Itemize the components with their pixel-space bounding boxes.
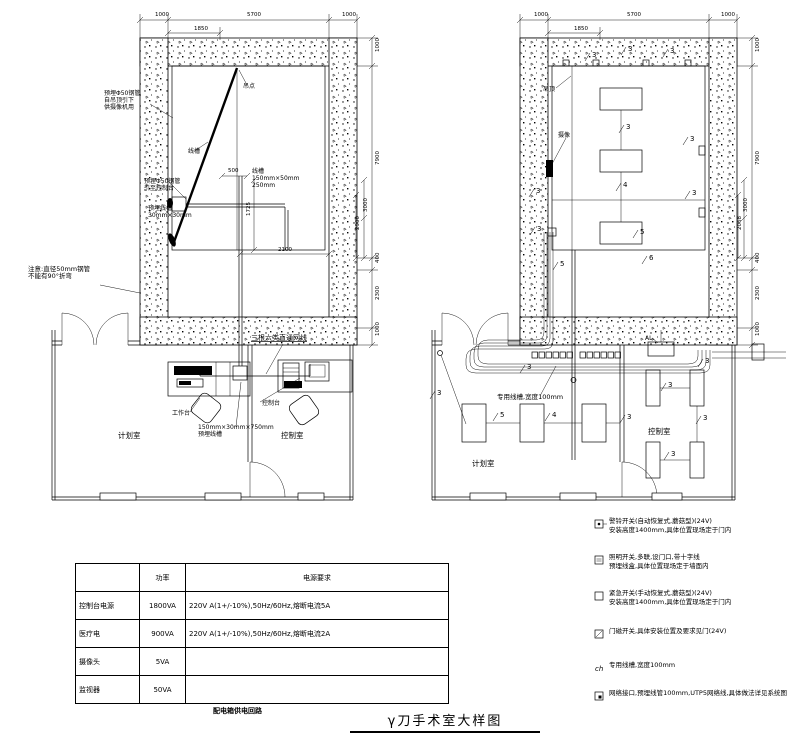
power-value: 5VA <box>140 648 186 676</box>
requirement-value <box>186 648 449 676</box>
equipment-cabinet <box>582 404 606 442</box>
chair <box>287 393 320 426</box>
note-tray-size: 150mm×50mm <box>252 175 300 182</box>
row-label: 摄像头 <box>76 648 140 676</box>
circuit-tick <box>619 125 624 133</box>
dimension-label: 2068 <box>737 216 743 230</box>
dimension-label: 400 <box>755 252 761 263</box>
monitor-rack <box>646 370 660 406</box>
note-floor-tray: 150mm×30mm×750mm <box>198 424 274 431</box>
circuit-number: 3 <box>670 47 674 55</box>
annotation-layer: 1000570010001850100057001000185010007900… <box>28 12 761 468</box>
note-embedded-tray: 预埋线槽 <box>148 204 172 212</box>
note-pipe-warning: 不能有90°折弯 <box>28 271 73 280</box>
circuit-number: 3 <box>592 51 596 59</box>
right-plan-walls <box>520 38 737 345</box>
dimension-label: 1000 <box>375 322 381 336</box>
workstation-desk <box>168 362 250 396</box>
dimension-label: 2300 <box>755 286 761 300</box>
dimension-label: 1000 <box>534 12 548 18</box>
entry-door-arcs <box>62 313 128 345</box>
dimension-label: 3000 <box>363 198 369 212</box>
label-camera: 摄像 <box>558 131 570 139</box>
ceiling-fixture <box>600 88 642 110</box>
requirement-value <box>186 676 449 704</box>
dimension-label: 1000 <box>721 12 735 18</box>
monitor-rack <box>690 370 704 406</box>
circuit-tick <box>493 413 498 421</box>
circuit-number: 3 <box>668 381 672 389</box>
circuit-number: 3 <box>692 189 696 197</box>
requirement-value: 220V A(1+/-10%),50Hz/60Hz,熔断电流2A <box>186 620 449 648</box>
circuit-tick <box>520 365 525 373</box>
circuit-tick <box>683 137 688 145</box>
cable-joint <box>438 351 443 356</box>
drawing-sheet: 1000570010001850100057001000185010007900… <box>0 0 800 745</box>
note-tray-size: 250mm <box>252 182 275 189</box>
note-conduit-console: 预埋Φ50钢管 <box>144 177 180 185</box>
circuit-number: 3 <box>690 135 694 143</box>
power-spec-table: 功率 电源要求 控制台电源 1800VA 220V A(1+/-10%),50H… <box>75 563 449 704</box>
dimension-label: 5700 <box>247 12 261 18</box>
circuit-number: 5 <box>640 228 644 236</box>
circuit-number: 3 <box>536 187 540 195</box>
page-title: γ刀手术室大样图 <box>350 710 540 733</box>
circuit-tick <box>698 359 703 367</box>
circuit-tick <box>664 452 669 460</box>
col-header-blank <box>76 564 140 592</box>
room-label-planning: 计划室 <box>118 430 141 440</box>
circuit-number: 4 <box>552 411 557 419</box>
circuit-tick <box>545 413 550 421</box>
ceiling-fixture <box>600 150 642 172</box>
circuit-number: 3 <box>671 450 675 458</box>
dimension-label: 1850 <box>194 26 208 32</box>
wall-switch <box>699 208 705 217</box>
table-header-row: 功率 电源要求 <box>76 564 449 592</box>
partition-door <box>250 462 285 497</box>
ceiling-fixture <box>600 222 642 244</box>
circuit-tick <box>616 183 621 191</box>
circuit-tick <box>685 191 690 199</box>
dimension-label: 1000 <box>375 38 381 52</box>
note-tray-size: 线槽 <box>252 167 264 175</box>
circuit-number: 3 <box>626 123 630 131</box>
terminal-strip <box>532 352 621 358</box>
circuit-tick <box>430 391 435 399</box>
dimension-label: 1000 <box>755 322 761 336</box>
table-row: 控制台电源 1800VA 220V A(1+/-10%),50Hz/60Hz,熔… <box>76 592 449 620</box>
circuit-tick <box>633 230 638 238</box>
junction-box <box>172 197 186 211</box>
dimension-label: 500 <box>228 168 239 174</box>
circuit-number: 3 <box>527 363 531 371</box>
partition-door <box>622 462 657 497</box>
entry-door-leaves <box>62 313 128 345</box>
dimension-label: 1725 <box>246 202 252 216</box>
circuit-number: 5 <box>560 260 564 268</box>
dimension-label: 1000 <box>342 12 356 18</box>
note-network-cables: 三根六类直通网线 <box>251 333 307 342</box>
row-label: 医疗电 <box>76 620 140 648</box>
table-row: 医疗电 900VA 220V A(1+/-10%),50Hz/60Hz,熔断电流… <box>76 620 449 648</box>
circuit-number: 4 <box>623 181 628 189</box>
power-value: 1800VA <box>140 592 186 620</box>
dimension-label: 3000 <box>743 198 749 212</box>
note-conduit-camera: 预埋Φ50钢管 <box>104 89 140 97</box>
room-label-control: 控制室 <box>281 430 304 440</box>
wall-switch <box>699 146 705 155</box>
circuit-number: 3 <box>703 414 707 422</box>
right-plan <box>432 14 786 500</box>
dimension-label: 2100 <box>278 247 292 253</box>
console-device <box>174 366 212 375</box>
dimension-label: 1000 <box>155 12 169 18</box>
dimension-label: 1850 <box>574 26 588 32</box>
treatment-room-outline <box>552 66 705 250</box>
circuit-number: 6 <box>649 254 654 262</box>
power-value: 50VA <box>140 676 186 704</box>
circuit-number: 3 <box>537 225 541 233</box>
row-label: 控制台电源 <box>76 592 140 620</box>
dimension-label: 2900 <box>355 216 361 230</box>
floor-outlet-box <box>233 366 247 380</box>
circuit-tick <box>661 383 666 391</box>
room-label-control-2: 控制室 <box>648 426 671 436</box>
col-header-power: 功率 <box>140 564 186 592</box>
note-embedded-tray: 30mm×30mm <box>148 212 192 219</box>
circuit-number: 3 <box>437 389 441 397</box>
dimension-label: 400 <box>375 252 381 263</box>
requirement-value: 220V A(1+/-10%),50Hz/60Hz,熔断电流5A <box>186 592 449 620</box>
table-caption: 配电箱供电回路 <box>213 706 262 716</box>
row-label: 监视器 <box>76 676 140 704</box>
right-plan-devices <box>546 60 705 460</box>
monitor-rack <box>690 442 704 478</box>
room-label-planning-2: 计划室 <box>472 458 495 468</box>
circuit-tick <box>553 262 558 270</box>
circuit-number: 3 <box>628 45 632 53</box>
label-hanging-point: 吊点 <box>243 82 255 90</box>
circuit-number: 3 <box>627 413 631 421</box>
dimension-label: 7900 <box>755 151 761 165</box>
right-plan-leaders <box>540 76 658 396</box>
table-row: 摄像头 5VA <box>76 648 449 676</box>
dimension-label: 5700 <box>627 12 641 18</box>
circuit-tick <box>696 416 701 424</box>
table-row: 监视器 50VA <box>76 676 449 704</box>
monitor-rack <box>646 442 660 478</box>
note-conduit-camera: 供摄像机用 <box>104 103 134 111</box>
label-ceiling: 吊顶 <box>543 86 555 93</box>
note-conduit-console: 引至控制台 <box>144 184 174 192</box>
dimension-label: 7900 <box>375 151 381 165</box>
label-console: 控制台 <box>262 399 280 407</box>
label-al-box: AL <box>645 335 653 342</box>
note-conduit-camera: 自吊顶引下 <box>104 96 134 104</box>
circuit-number: 3 <box>705 357 709 365</box>
treatment-room-outline <box>172 66 325 250</box>
note-floor-tray: 预埋线槽 <box>198 430 222 438</box>
col-header-requirement: 电源要求 <box>186 564 449 592</box>
dimension-label: 2300 <box>375 286 381 300</box>
dimension-label: 1000 <box>755 38 761 52</box>
circuit-number: 5 <box>500 411 504 419</box>
note-tray-width: 专用线槽,宽度100mm <box>497 392 563 401</box>
power-value: 900VA <box>140 620 186 648</box>
label-cable-tray: 线槽 <box>188 147 200 155</box>
equipment-cabinet <box>520 404 544 442</box>
circuit-tick <box>642 256 647 264</box>
camera-device <box>546 160 553 177</box>
label-workbench: 工作台 <box>172 409 190 417</box>
